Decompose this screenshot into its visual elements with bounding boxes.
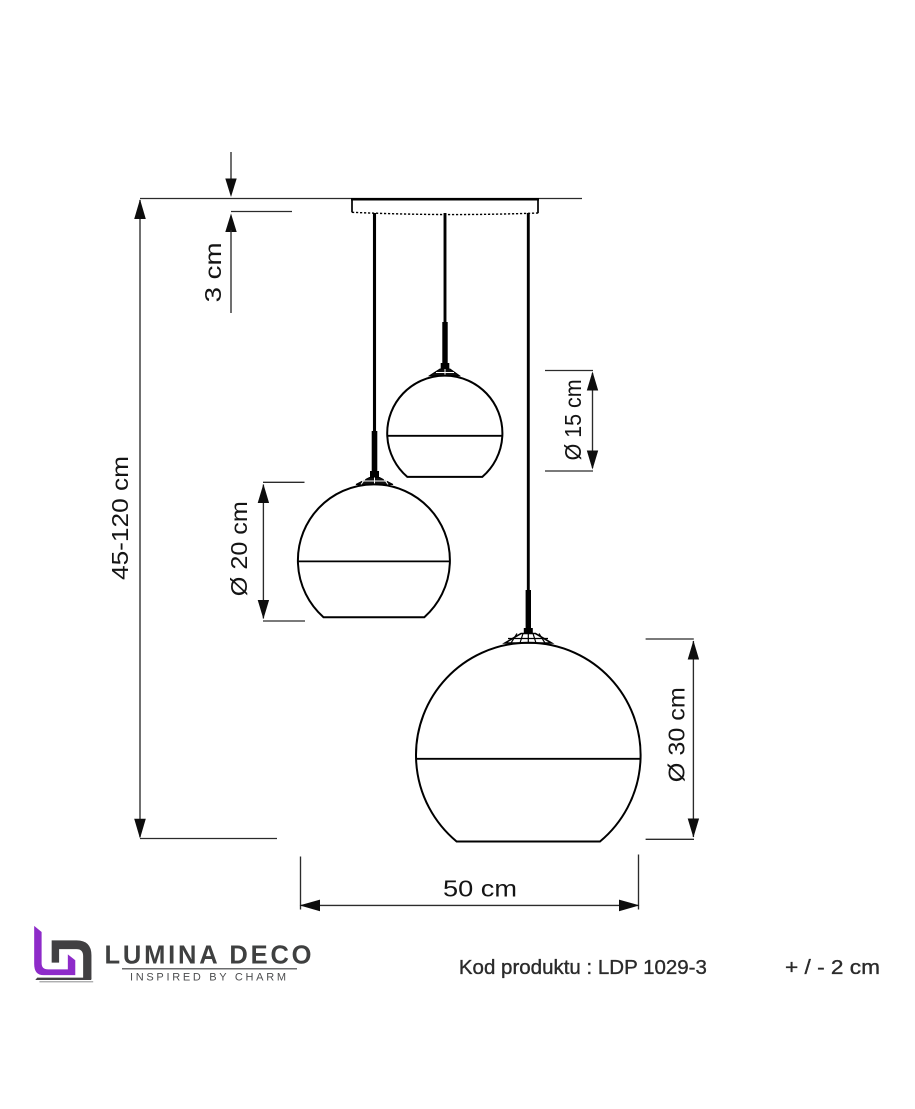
svg-text:Ø 15 cm: Ø 15 cm (560, 379, 586, 460)
svg-text:50 cm: 50 cm (443, 876, 517, 902)
svg-text:Ø 30 cm: Ø 30 cm (664, 687, 690, 782)
svg-text:Ø 20 cm: Ø 20 cm (226, 501, 252, 596)
svg-text:LUMINA DECO: LUMINA DECO (105, 941, 312, 969)
svg-text:3 cm: 3 cm (200, 242, 226, 302)
svg-text:+ / - 2 cm: + / - 2 cm (785, 956, 880, 979)
svg-text:45-120 cm: 45-120 cm (107, 456, 133, 580)
svg-text:Kod produktu : LDP 1029-3: Kod produktu : LDP 1029-3 (459, 956, 707, 979)
